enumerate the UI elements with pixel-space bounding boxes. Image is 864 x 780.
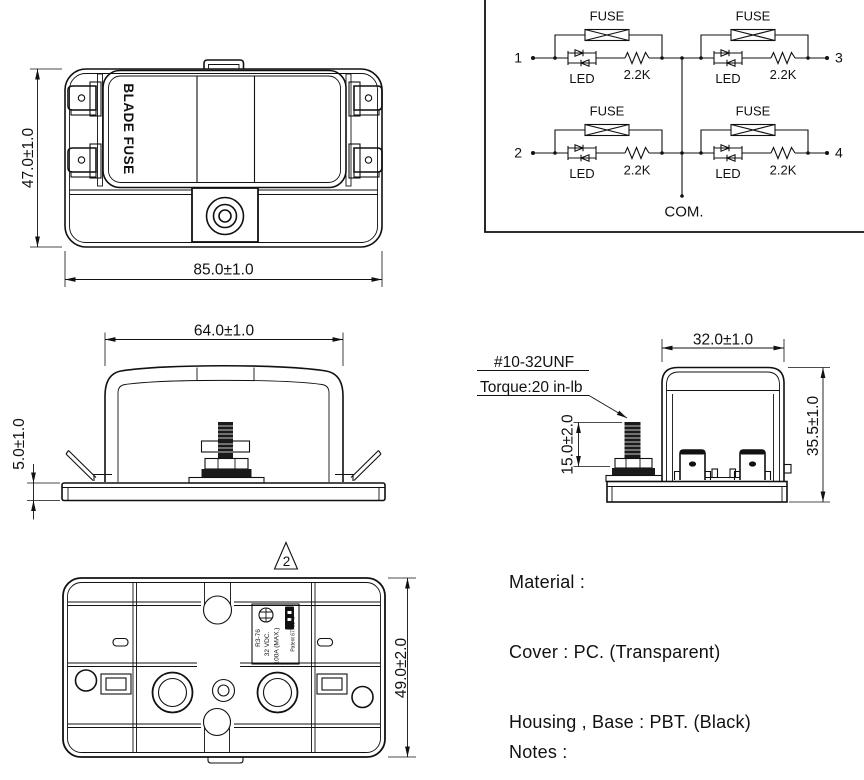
bottom-dimensions: 49.0±2.0: [388, 578, 416, 757]
thread-callout: #10-32UNF Torque:20 in-lb: [477, 354, 627, 418]
dim-end-width: 32.0±1.0: [693, 332, 754, 349]
circuit-schematic: 1 2 3 4 FUSE FUSE FUSE FUSE LED LED LED …: [450, 0, 864, 250]
end-base: [607, 482, 787, 503]
resistor-label-1: 2.2K: [624, 67, 651, 82]
dim-front-width: 85.0±1.0: [193, 262, 254, 279]
side-stud-assembly: [189, 422, 264, 483]
torque-spec-label: Torque:20 in-lb: [480, 379, 583, 396]
front-terminals: [68, 82, 382, 178]
terminal-3-label: 3: [835, 50, 843, 66]
end-dimensions: 32.0±1.0 35.5±1.0 15.0±2.0: [560, 332, 831, 503]
rating-sticker: R3-76 32 VDC. 100A (MAX.) Patent 6775148: [252, 604, 299, 664]
dim-side-base: 5.0±1.0: [11, 418, 28, 470]
fuse-unit-4: [677, 125, 810, 162]
dim-front-height: 47.0±1.0: [20, 128, 37, 189]
material-line: Cover : PC. (Transparent): [509, 641, 751, 664]
terminal-1-label: 1: [514, 50, 522, 66]
thread-spec-label: #10-32UNF: [494, 354, 574, 371]
fuse-unit-3: [677, 30, 810, 67]
resistor-label-3: 2.2K: [770, 67, 797, 82]
end-blade-terminals: [675, 450, 771, 480]
dim-end-height: 35.5±1.0: [805, 396, 822, 457]
drawing-sheet: BLADE FUSE 47.0±1.0 85.0±1.0: [0, 0, 864, 780]
material-title: Material :: [509, 571, 751, 594]
side-base: [62, 483, 385, 501]
dim-side-width: 64.0±1.0: [194, 323, 255, 340]
fuse-label-2: FUSE: [590, 104, 625, 119]
sticker-current: 100A (MAX.): [274, 628, 281, 665]
base-ribs: [68, 583, 381, 753]
cover-brand-text: BLADE FUSE: [121, 83, 136, 174]
revision-triangle: 2: [275, 543, 298, 570]
end-stud-assembly: [606, 422, 662, 482]
front-view: BLADE FUSE 47.0±1.0 85.0±1.0: [0, 0, 440, 300]
fuse-label-1: FUSE: [590, 9, 625, 24]
end-cover: [662, 368, 791, 483]
side-dimensions: 64.0±1.0 5.0±1.0: [11, 323, 343, 520]
dim-bottom-height: 49.0±2.0: [393, 638, 410, 699]
bottom-view: 2: [0, 520, 440, 780]
resistor-label-4: 2.2K: [770, 163, 797, 178]
base-features: [76, 583, 374, 753]
terminal-4-label: 4: [835, 145, 843, 161]
front-stud-boss: [192, 188, 258, 242]
led-label-1: LED: [569, 71, 594, 86]
led-label-2: LED: [569, 166, 594, 181]
dim-end-stud: 15.0±2.0: [560, 414, 577, 475]
sticker-patent: Patent 6775148: [291, 616, 297, 652]
end-view: #10-32UNF Torque:20 in-lb 32.0±1.0 35.5±…: [440, 300, 864, 520]
fuse-unit-1: [531, 30, 664, 67]
fuse-label-4: FUSE: [736, 104, 771, 119]
fuse-label-3: FUSE: [736, 9, 771, 24]
notes-title: Notes :: [509, 741, 734, 764]
sticker-model: R3-76: [255, 629, 262, 647]
notes-block: Notes : Rating 100A max. tested by 4 pcs…: [509, 695, 734, 780]
sticker-voltage: 32 VDC.: [264, 632, 271, 657]
front-housing: [65, 60, 382, 247]
resistor-label-2: 2.2K: [624, 163, 651, 178]
side-view: 64.0±1.0 5.0±1.0: [0, 300, 440, 520]
led-label-3: LED: [715, 71, 740, 86]
fuse-unit-2: [531, 125, 664, 162]
front-dimensions: 47.0±1.0 85.0±1.0: [20, 69, 382, 287]
revision-number: 2: [283, 554, 291, 569]
led-label-4: LED: [715, 166, 740, 181]
terminal-2-label: 2: [514, 145, 522, 161]
common-terminal-label: COM.: [664, 204, 703, 221]
